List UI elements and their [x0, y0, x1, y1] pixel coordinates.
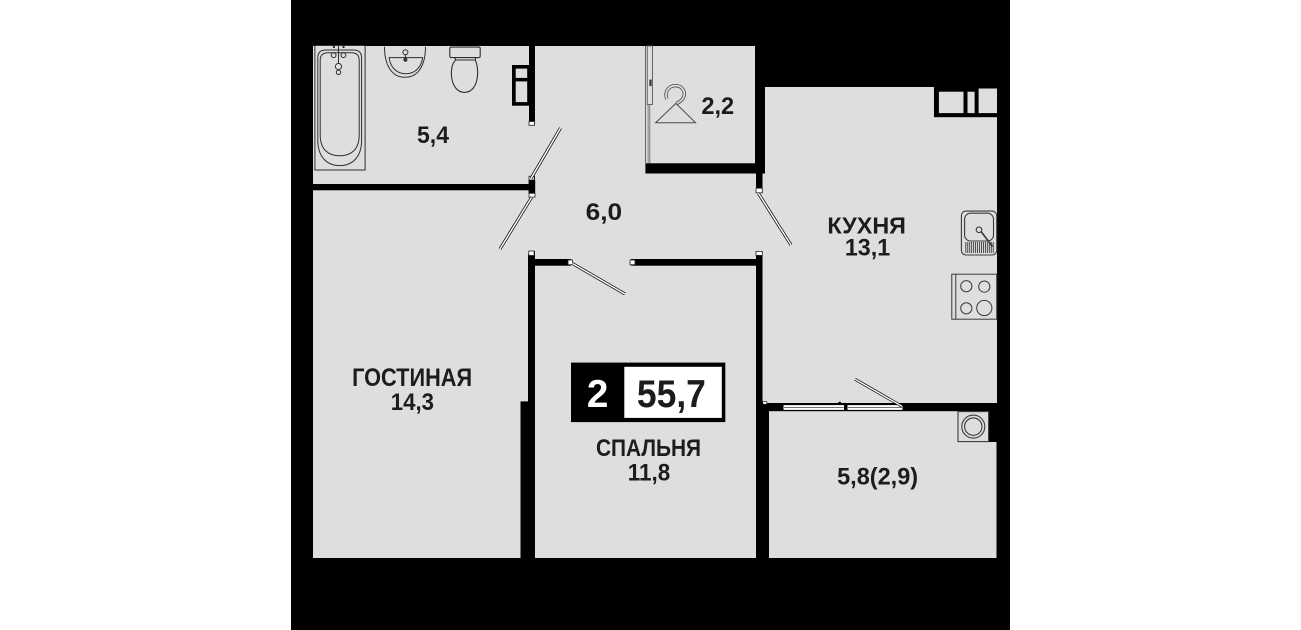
svg-text:6,0: 6,0: [586, 199, 623, 226]
svg-text:11,8: 11,8: [628, 460, 671, 487]
svg-text:14,3: 14,3: [391, 389, 434, 416]
svg-text:13,1: 13,1: [845, 234, 890, 261]
svg-text:5,4: 5,4: [417, 122, 450, 149]
svg-text:55,7: 55,7: [637, 373, 706, 416]
svg-text:5,8(2,9): 5,8(2,9): [837, 463, 918, 490]
svg-text:СПАЛЬНЯ: СПАЛЬНЯ: [596, 435, 701, 462]
svg-text:2,2: 2,2: [701, 93, 734, 120]
svg-text:ГОСТИНАЯ: ГОСТИНАЯ: [352, 364, 472, 392]
svg-text:2: 2: [587, 373, 609, 416]
